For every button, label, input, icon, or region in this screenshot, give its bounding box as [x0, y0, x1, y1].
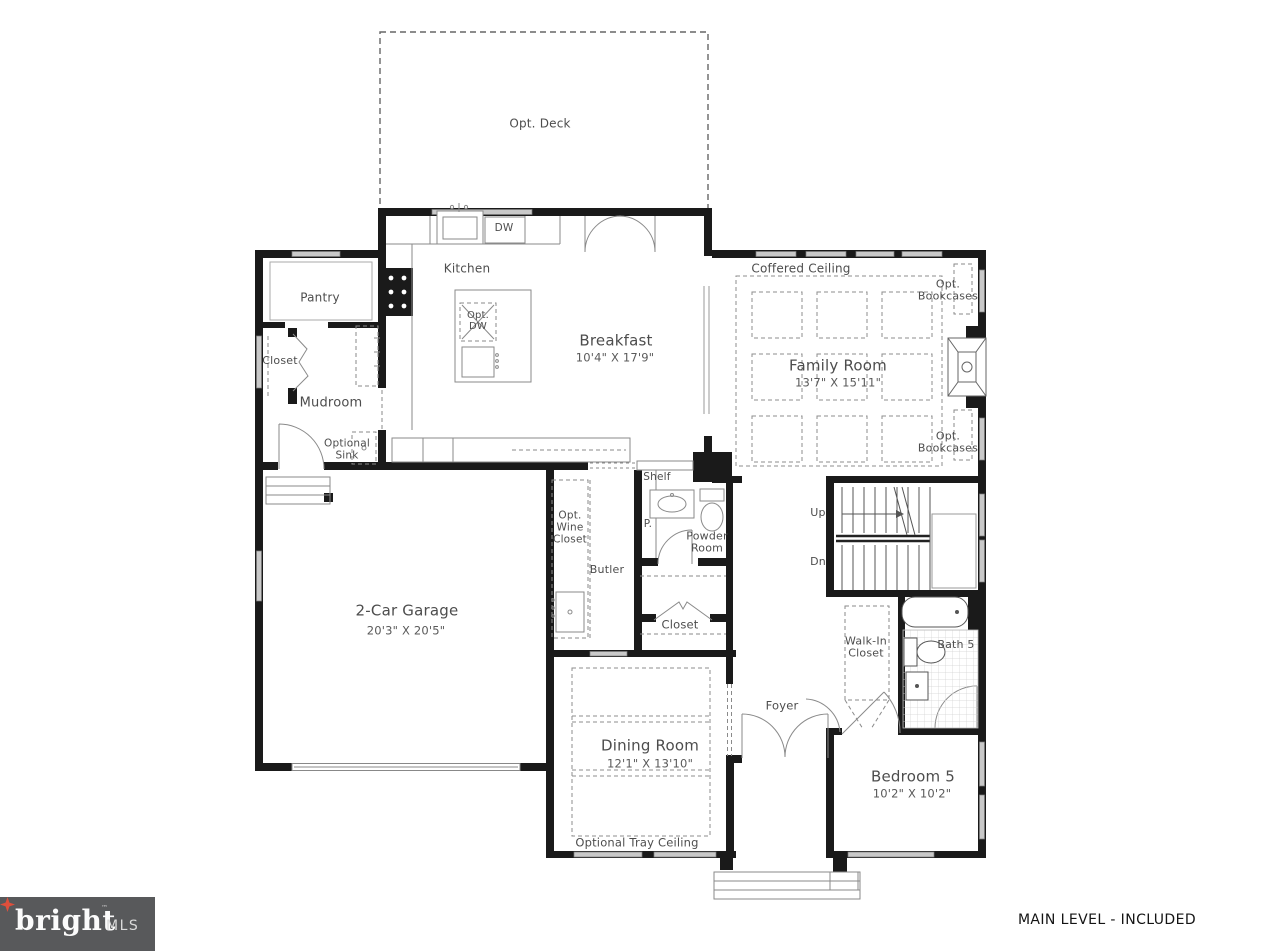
label-dining-room-dims: 12'1" X 13'10"	[607, 758, 693, 771]
logo-mls-text: MLS	[106, 918, 139, 934]
label-dw: DW	[495, 223, 514, 235]
label-dn: Dn	[810, 556, 826, 568]
label-foyer: Foyer	[766, 700, 799, 713]
label-closet-left: Closet	[262, 355, 297, 367]
label-coffered-ceiling: Coffered Ceiling	[751, 262, 850, 275]
label-shelf: Shelf	[643, 472, 670, 484]
label-dining-room: Dining Room	[601, 738, 699, 755]
label-walk-in-closet: Walk-In Closet	[838, 636, 894, 661]
label-family-room: Family Room	[789, 358, 887, 375]
brightmls-logo: bright ™ MLS	[0, 897, 155, 951]
stairs	[836, 487, 976, 590]
logo-star-icon	[0, 897, 15, 912]
shelf-niche	[637, 461, 693, 470]
label-opt-dw: Opt. DW	[463, 310, 493, 332]
label-wine-closet: Opt. Wine Closet	[547, 510, 593, 545]
label-bath5: Bath 5	[937, 639, 974, 651]
label-up: Up	[810, 507, 825, 519]
label-garage: 2-Car Garage	[356, 603, 459, 620]
label-bedroom5: Bedroom 5	[871, 769, 955, 786]
label-optional-sink: Optional Sink	[319, 438, 375, 462]
label-opt-bookcases-top: Opt. Bookcases	[912, 279, 984, 304]
cased-opening	[728, 684, 732, 756]
label-opt-bookcases-bottom: Opt. Bookcases	[912, 431, 984, 456]
logo-trademark: ™	[101, 904, 108, 912]
label-tray-ceiling: Optional Tray Ceiling	[575, 837, 698, 850]
label-mudroom: Mudroom	[300, 397, 363, 412]
label-breakfast-dims: 10'4" X 17'9"	[576, 352, 655, 365]
label-garage-dims: 20'3" X 20'5"	[367, 625, 446, 638]
label-breakfast: Breakfast	[579, 333, 652, 350]
garage-door	[292, 764, 520, 771]
label-powder-room: Powder Room	[681, 531, 733, 556]
label-butler: Butler	[590, 564, 624, 576]
label-opt-deck: Opt. Deck	[509, 117, 570, 130]
label-pantry: Pantry	[300, 291, 340, 304]
bath5-fixtures	[902, 597, 978, 728]
floor-plan-page: Opt. Deck Kitchen DW Opt. DW Breakfast 1…	[0, 0, 1280, 951]
label-bedroom5-dims: 10'2" X 10'2"	[873, 788, 952, 801]
label-closet-mid: Closet	[661, 619, 698, 632]
fireplace	[948, 338, 986, 396]
plan-level-label: MAIN LEVEL - INCLUDED	[1018, 913, 1196, 929]
label-kitchen: Kitchen	[444, 262, 491, 275]
floor-plan-drawing	[0, 0, 1280, 951]
casework	[266, 203, 977, 899]
label-family-room-dims: 13'7" X 15'11"	[795, 377, 881, 390]
label-p: P.	[644, 519, 652, 531]
